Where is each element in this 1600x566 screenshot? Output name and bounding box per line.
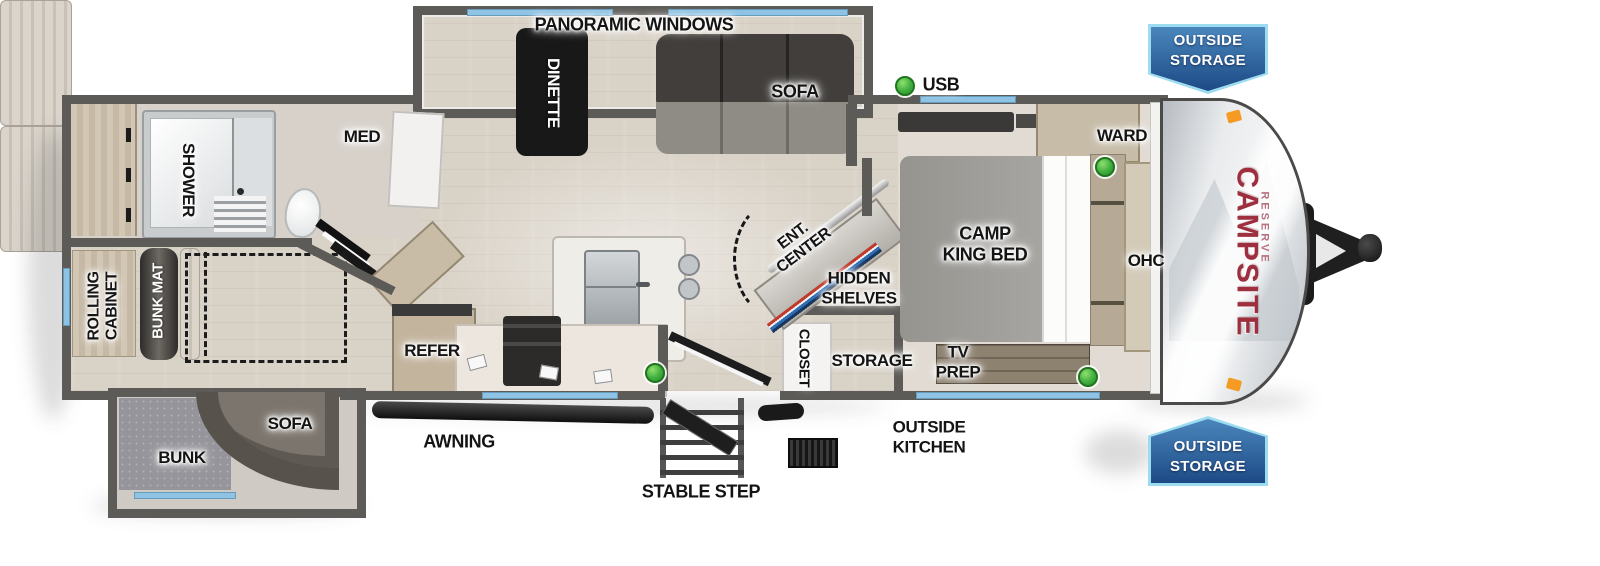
bed-pillows (1042, 156, 1090, 342)
camp-king-bed-label: CAMP KING BED (943, 223, 1028, 264)
badge-line: STORAGE (1148, 458, 1268, 475)
tv-prep-label: TV PREP (936, 342, 981, 381)
usb-dot-counter (645, 363, 665, 383)
tv-line2: PREP (936, 362, 981, 382)
outside-kitchen-label: OUTSIDE KITCHEN (893, 417, 966, 456)
bunk-mat-label: BUNK MAT (149, 263, 166, 339)
usb-dot-bed (1078, 367, 1098, 387)
shower-steps (214, 196, 266, 232)
med-cabinet (388, 111, 445, 210)
ward-label: WARD (1097, 126, 1147, 146)
sofa-bottom-label: SOFA (268, 414, 313, 434)
outside-kitchen-griddle (788, 438, 838, 468)
awning-label: AWNING (423, 432, 495, 453)
usb-dot-sofa (895, 76, 915, 96)
kitchen-sink (584, 250, 640, 328)
closet-label: CLOSET (795, 329, 812, 387)
stable-step-label: STABLE STEP (642, 482, 760, 503)
hidden-shelves-label: HIDDEN SHELVES (821, 268, 896, 307)
sofa-top-back (656, 34, 854, 106)
island-stool (678, 278, 700, 300)
shadow-badge (1085, 430, 1155, 474)
rolling-line1: ROLLING (86, 271, 104, 340)
refer-label: REFER (404, 341, 460, 361)
outside-kitchen-line2: KITCHEN (893, 437, 966, 457)
bedroom-vent (898, 112, 1014, 132)
wall-top-left (62, 95, 422, 104)
tv-line1: TV (936, 342, 981, 362)
usb-label: USB (923, 75, 960, 96)
shower-drain (237, 188, 244, 195)
stable-step (658, 396, 748, 484)
med-label: MED (344, 127, 381, 147)
bed-line1: CAMP (943, 223, 1028, 244)
window-bedroom-top (920, 96, 1016, 103)
sofa-top-seat (656, 102, 854, 154)
wall-slideout-right-ext (846, 104, 857, 166)
outside-storage-badge-bottom: OUTSIDE STORAGE (1148, 416, 1268, 486)
rv-floorplan-diagram: CAMPSITE RESERVE OUTSIDE STORAGE OUTSIDE… (0, 0, 1600, 566)
badge-line: OUTSIDE (1148, 32, 1268, 49)
wall-left (62, 95, 71, 400)
bottom-slideout-window (134, 492, 236, 499)
dinette-label: DINETTE (543, 58, 563, 128)
bedroom-divider-nub (862, 158, 872, 216)
sink-divider (586, 286, 636, 288)
wall-bath-bottom (62, 238, 312, 247)
panoramic-windows-label: PANORAMIC WINDOWS (535, 15, 734, 36)
bed-line2: KING BED (943, 244, 1028, 265)
bed-headboard (1090, 154, 1126, 346)
ohc-label: OHC (1128, 251, 1165, 271)
wall-bottom-a (62, 391, 116, 400)
rear-door-latch (126, 208, 131, 222)
sink-faucet (636, 282, 650, 287)
rear-door-latch (126, 128, 131, 142)
window-left-wall (63, 268, 70, 326)
refrigerator-top (392, 304, 472, 316)
flip-bunk-outline (185, 253, 347, 363)
hidden-line1: HIDDEN (821, 268, 896, 288)
outside-kitchen-line1: OUTSIDE (893, 417, 966, 437)
hidden-line2: SHELVES (821, 288, 896, 308)
bunk-label: BUNK (158, 448, 206, 468)
storage-label: STORAGE (832, 351, 913, 371)
window-kitchen-bottom (482, 392, 618, 399)
outside-storage-badge-top: OUTSIDE STORAGE (1148, 24, 1268, 94)
kitchen-counter (455, 324, 667, 397)
step-rung (660, 455, 744, 460)
window-bedroom-bottom (916, 392, 1100, 399)
rear-door-latch (126, 168, 131, 182)
hitch-coupler (1358, 234, 1382, 262)
shower-label: SHOWER (178, 143, 198, 217)
badge-line: STORAGE (1148, 52, 1268, 69)
outside-kitchen-bar (757, 402, 804, 421)
usb-dot-ward (1095, 157, 1115, 177)
counter-item (593, 369, 613, 384)
badge-line: OUTSIDE (1148, 438, 1268, 455)
rolling-cabinet-label: ROLLING CABINET (86, 271, 123, 340)
island-stool (678, 254, 700, 276)
rolling-line2: CABINET (104, 271, 122, 340)
step-rung (660, 470, 744, 475)
brand-series: RESERVE (1258, 191, 1271, 264)
sofa-top-label: SOFA (771, 82, 818, 103)
